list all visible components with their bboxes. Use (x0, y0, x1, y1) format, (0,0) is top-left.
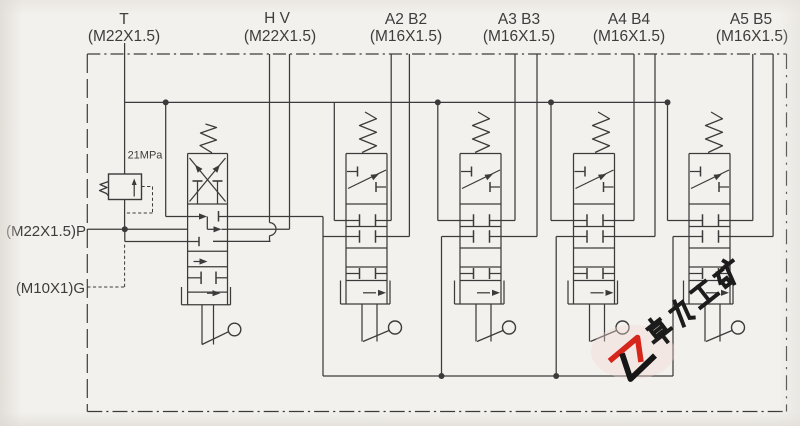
svg-text:(M16X1.5): (M16X1.5) (593, 28, 665, 45)
svg-text:(M22X1.5): (M22X1.5) (88, 28, 160, 45)
svg-text:(M16X1.5): (M16X1.5) (370, 28, 442, 45)
svg-text:(M22X1.5): (M22X1.5) (244, 28, 316, 45)
svg-text:(M10X1)G: (M10X1)G (16, 280, 85, 297)
svg-text:(M16X1.5): (M16X1.5) (483, 28, 555, 45)
svg-text:(M16X1.5): (M16X1.5) (716, 28, 788, 45)
svg-text:21MPa: 21MPa (128, 150, 164, 162)
